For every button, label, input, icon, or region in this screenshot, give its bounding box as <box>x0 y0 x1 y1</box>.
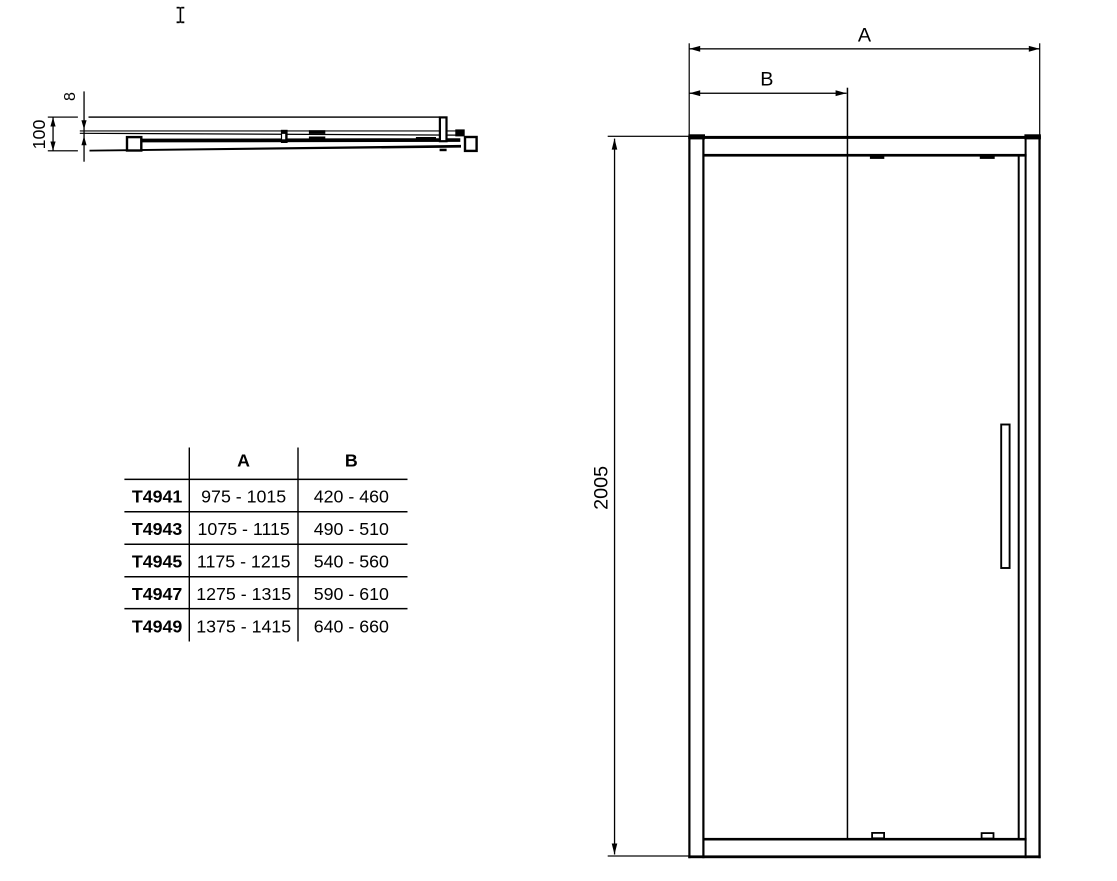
svg-text:A: A <box>858 25 872 47</box>
svg-text:B: B <box>760 69 773 91</box>
svg-text:T4941: T4941 <box>132 486 183 506</box>
svg-text:490 - 510: 490 - 510 <box>314 519 389 539</box>
svg-text:T4943: T4943 <box>132 519 183 539</box>
svg-text:B: B <box>345 451 358 471</box>
svg-text:1075 - 1115: 1075 - 1115 <box>198 519 290 539</box>
svg-text:1275 - 1315: 1275 - 1315 <box>196 584 291 604</box>
svg-text:100: 100 <box>29 120 49 150</box>
svg-text:8: 8 <box>62 92 79 101</box>
svg-text:640 - 660: 640 - 660 <box>314 616 389 636</box>
svg-text:A: A <box>237 451 250 471</box>
svg-text:2005: 2005 <box>590 466 612 510</box>
svg-text:T4945: T4945 <box>132 551 183 571</box>
svg-text:590 - 610: 590 - 610 <box>314 584 389 604</box>
svg-text:1375 - 1415: 1375 - 1415 <box>196 616 291 636</box>
svg-text:T4947: T4947 <box>132 584 183 604</box>
svg-text:540 - 560: 540 - 560 <box>314 551 389 571</box>
svg-text:1175 - 1215: 1175 - 1215 <box>197 551 291 571</box>
svg-text:420 - 460: 420 - 460 <box>314 486 389 506</box>
svg-text:975 - 1015: 975 - 1015 <box>201 486 286 506</box>
svg-text:T4949: T4949 <box>132 616 183 636</box>
